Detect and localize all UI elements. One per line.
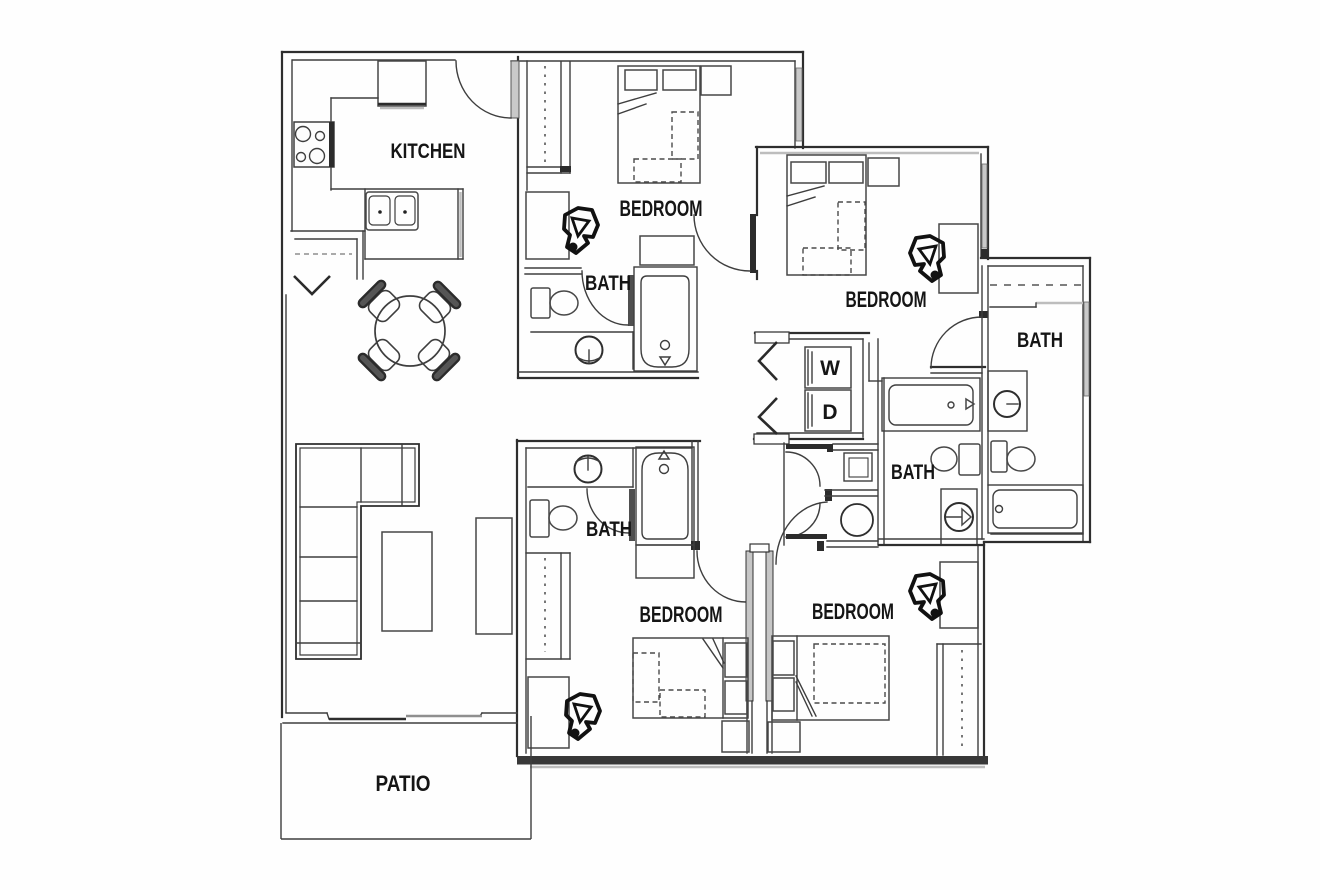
svg-text:KITCHEN: KITCHEN (391, 140, 466, 163)
svg-text:BEDROOM: BEDROOM (620, 196, 703, 221)
svg-text:BATH: BATH (891, 461, 935, 484)
svg-text:BATH: BATH (585, 272, 631, 295)
svg-text:BATH: BATH (1017, 329, 1063, 352)
svg-text:PATIO: PATIO (376, 771, 431, 796)
svg-text:W: W (820, 357, 840, 380)
svg-text:BEDROOM: BEDROOM (812, 599, 894, 624)
svg-text:BATH: BATH (586, 518, 632, 541)
svg-text:BEDROOM: BEDROOM (846, 287, 927, 312)
svg-text:D: D (822, 401, 837, 424)
svg-text:BEDROOM: BEDROOM (640, 602, 723, 627)
